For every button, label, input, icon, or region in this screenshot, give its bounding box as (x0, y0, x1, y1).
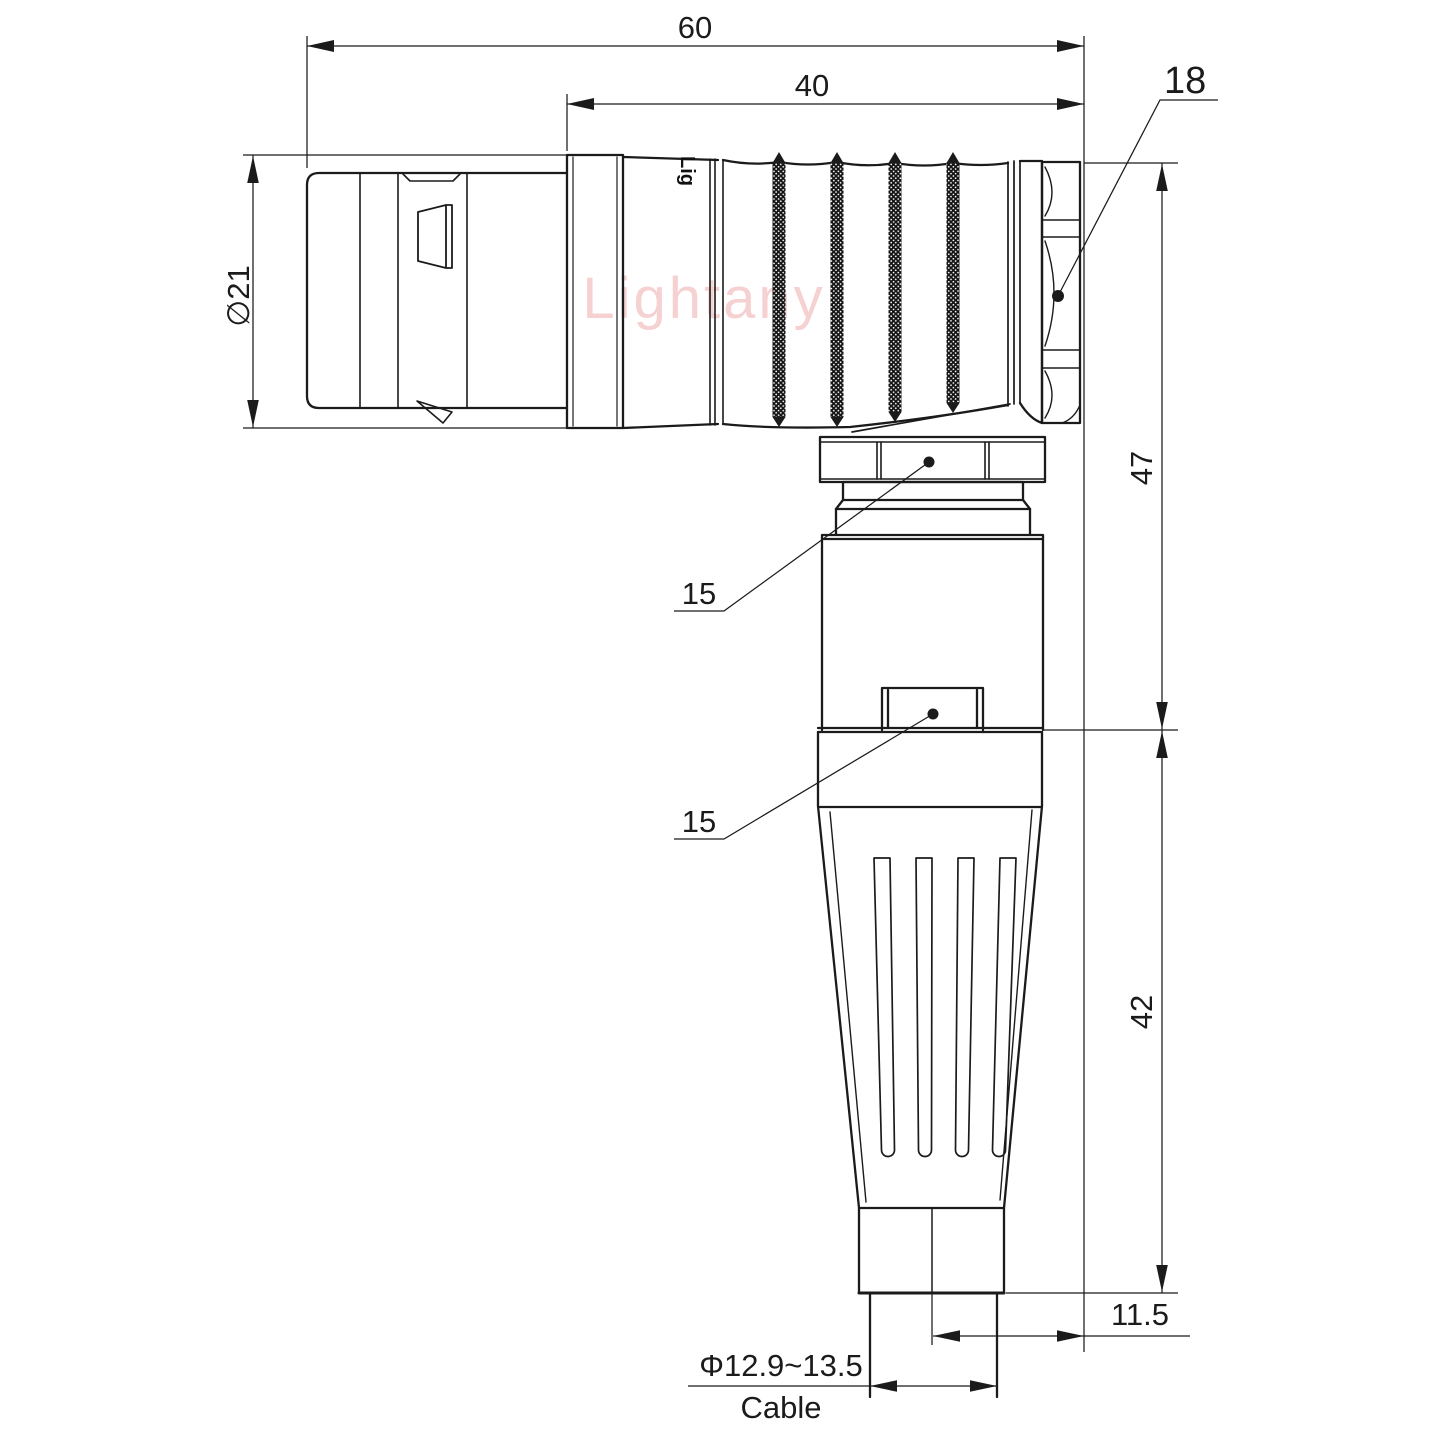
latch-mark (417, 401, 452, 423)
braid-band-3 (889, 163, 902, 412)
leader-18 (1058, 100, 1218, 296)
front-shell (307, 173, 567, 408)
dimension-labels-group: 60 40 18 ∅21 47 15 15 42 11.5 Φ12.9~13.5… (221, 10, 1206, 1425)
elbow-ring (843, 482, 1023, 500)
strain-relief-slot-3 (956, 858, 975, 1157)
label-cable-offset: 11.5 (1111, 1297, 1169, 1332)
braid-band-4 (947, 163, 960, 403)
label-body-length: 40 (795, 68, 829, 103)
arrow-42-top (1156, 731, 1168, 758)
arrow-60-right (1057, 40, 1084, 52)
lower-body-skirt (818, 732, 1042, 806)
strain-relief-cone (818, 806, 1042, 1208)
label-shell-diameter: ∅21 (221, 265, 256, 327)
label-height-lower: 42 (1124, 995, 1159, 1029)
arrow-47-bottom (1156, 702, 1168, 729)
arrow-d21-bottom (247, 400, 259, 427)
label-overall-length: 60 (678, 10, 712, 45)
label-callout-lower: 15 (682, 804, 716, 839)
label-height-upper: 47 (1124, 451, 1159, 485)
label-cable: Cable (741, 1390, 822, 1425)
body-marking-text: Lig (676, 156, 698, 186)
lower-body (822, 535, 1043, 730)
keyway-window (418, 205, 452, 268)
strain-relief-slot-2 (916, 858, 932, 1157)
arrow-47-top (1156, 164, 1168, 191)
leader-dot-18 (1052, 290, 1064, 302)
arrow-cable-left (870, 1380, 897, 1392)
elbow-collar (836, 509, 1030, 535)
technical-drawing-canvas: Lightany (0, 0, 1440, 1440)
arrow-40-left (567, 98, 594, 110)
braid-outline-top (723, 160, 1008, 166)
front-shell-top-notch (403, 174, 460, 181)
part-outline-group (307, 155, 1080, 1397)
cable (870, 1293, 997, 1397)
label-cable-diameter: Φ12.9~13.5 (699, 1348, 863, 1383)
braid-band-1 (773, 163, 786, 417)
watermark: Lightany (582, 266, 825, 331)
elbow-flare (836, 500, 1030, 509)
leader-dot-15-lower (928, 709, 939, 720)
arrow-60-left (307, 40, 334, 52)
body-split-line (818, 728, 1042, 732)
arrow-11-5-left (933, 1330, 960, 1342)
rear-block (1020, 161, 1042, 423)
dimension-arrows-group (247, 40, 1168, 1392)
label-nut-across-flats: 18 (1164, 60, 1206, 102)
label-callout-upper: 15 (682, 576, 716, 611)
braid-end-rings (1008, 161, 1020, 406)
dimension-lines-group (243, 36, 1218, 1386)
braid-outline-bottom (723, 405, 1008, 428)
strain-relief-slot-1 (874, 858, 895, 1157)
arrow-11-5-right (1057, 1330, 1084, 1342)
leader-dot-15-upper (924, 457, 935, 468)
connector-drawing: Lightany (0, 0, 1440, 1440)
arrow-d21-top (247, 156, 259, 183)
arrow-42-bottom (1156, 1265, 1168, 1292)
elbow-shoulder (852, 404, 1010, 432)
arrow-cable-right (970, 1380, 997, 1392)
arrow-40-right (1057, 98, 1084, 110)
braid-band-2 (831, 163, 844, 417)
